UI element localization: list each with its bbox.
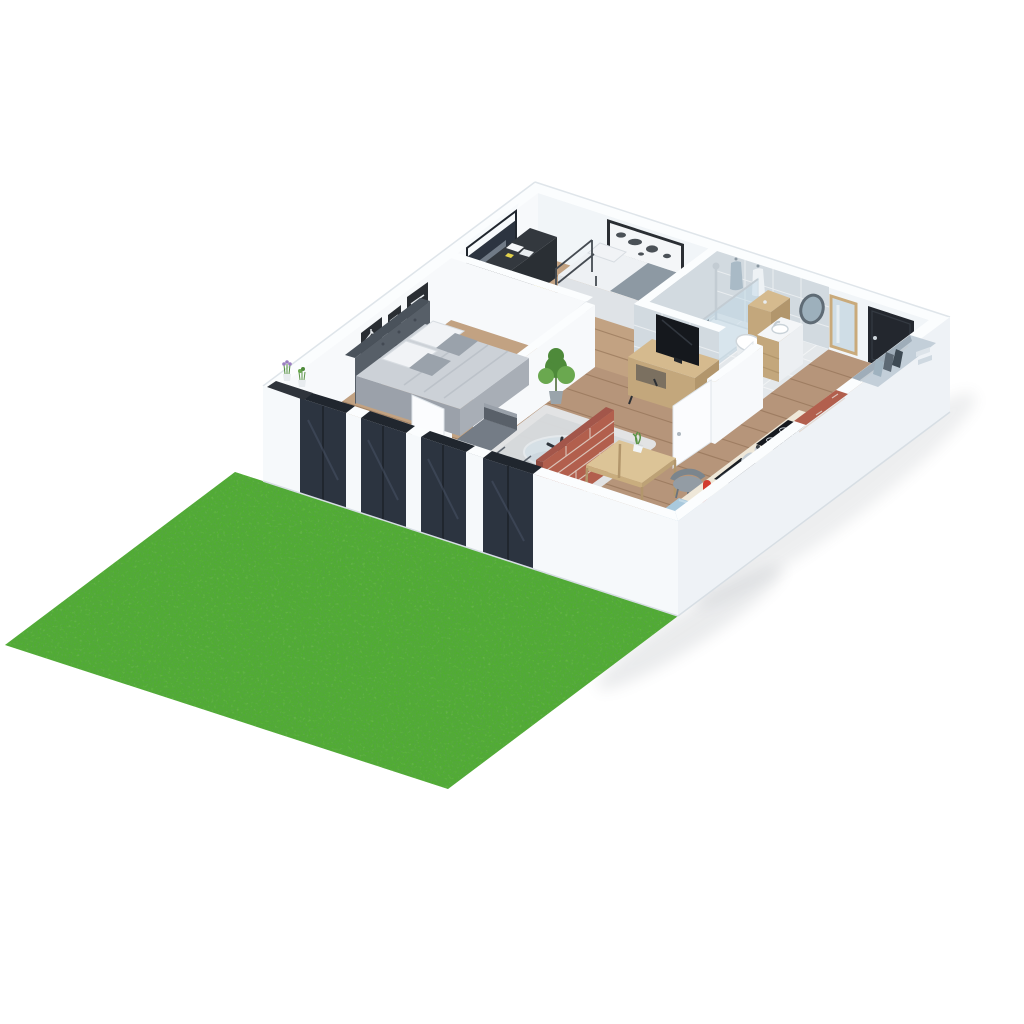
bathrobe-blue (730, 261, 743, 290)
lavender-bloom-5 (301, 367, 305, 371)
plant-foliage-3 (557, 366, 575, 384)
front-door-handle (873, 336, 877, 340)
robe-hook (735, 258, 738, 261)
plant-foliage-2 (538, 368, 554, 384)
lavender-pot (283, 374, 291, 381)
lavender-bloom-2 (285, 360, 289, 364)
lavender-bloom-3 (288, 362, 292, 366)
plant-pot (549, 391, 563, 404)
lavender-pot-b (298, 380, 306, 387)
robe-hook-2 (757, 265, 760, 268)
floor-plan-page (0, 0, 1024, 1024)
lavender-bloom-1 (282, 362, 286, 366)
plant-foliage-4 (548, 348, 564, 364)
flush-button (763, 300, 767, 304)
hall-mirror (831, 296, 856, 354)
floor-plan-render (0, 0, 1024, 1024)
shower-head (713, 263, 720, 270)
hall-door-handle (677, 432, 681, 436)
